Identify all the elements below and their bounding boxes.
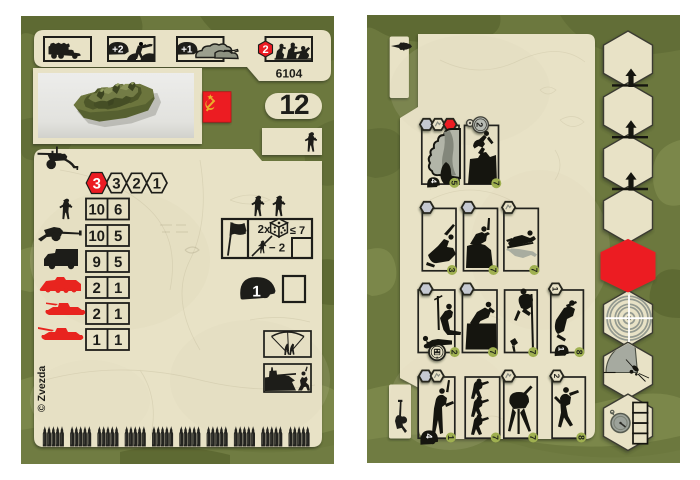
svg-text:© Zvezda: © Zvezda (36, 366, 48, 412)
svg-text:2x: 2x (258, 224, 271, 236)
svg-text:2: 2 (450, 350, 460, 355)
svg-text:9: 9 (93, 254, 101, 271)
svg-text:6: 6 (114, 202, 122, 219)
svg-text:2: 2 (93, 306, 101, 323)
svg-text:5: 5 (114, 254, 122, 271)
svg-text:7: 7 (529, 268, 539, 273)
svg-text:2: 2 (262, 44, 268, 56)
svg-text:7: 7 (528, 435, 538, 440)
svg-text:10: 10 (88, 202, 105, 219)
svg-text:12: 12 (279, 89, 309, 120)
svg-text:8: 8 (574, 350, 584, 355)
svg-text:4: 4 (424, 433, 434, 438)
svg-text:8: 8 (576, 435, 586, 440)
svg-text:4: 4 (429, 179, 438, 184)
svg-text:3: 3 (93, 175, 101, 192)
svg-text:2: 2 (475, 122, 485, 127)
svg-text:− 2: − 2 (269, 243, 285, 255)
svg-text:5: 5 (114, 228, 122, 245)
svg-text:2: 2 (132, 175, 140, 192)
svg-text:≤ 7: ≤ 7 (290, 225, 305, 237)
svg-text:1: 1 (114, 306, 122, 323)
svg-text:7: 7 (488, 350, 498, 355)
svg-text:7: 7 (491, 181, 501, 186)
svg-text:1: 1 (93, 332, 101, 349)
svg-text:1: 1 (551, 287, 560, 292)
svg-text:7: 7 (528, 350, 538, 355)
svg-text:2: 2 (552, 374, 561, 379)
svg-text:5: 5 (449, 181, 459, 186)
svg-text:2: 2 (93, 280, 101, 297)
svg-text:1: 1 (252, 284, 261, 301)
svg-text:3: 3 (447, 268, 457, 273)
svg-text:1: 1 (114, 280, 122, 297)
svg-text:1: 1 (557, 347, 566, 352)
svg-text:3: 3 (112, 175, 120, 192)
svg-text:10: 10 (88, 228, 105, 245)
svg-text:7: 7 (491, 435, 501, 440)
svg-text:+1: +1 (181, 44, 193, 55)
svg-text:1: 1 (153, 175, 161, 192)
svg-text:+2: +2 (112, 44, 124, 55)
svg-text:1: 1 (114, 332, 122, 349)
svg-text:7: 7 (489, 268, 499, 273)
svg-text:1: 1 (446, 435, 456, 440)
svg-text:6104: 6104 (276, 67, 303, 81)
